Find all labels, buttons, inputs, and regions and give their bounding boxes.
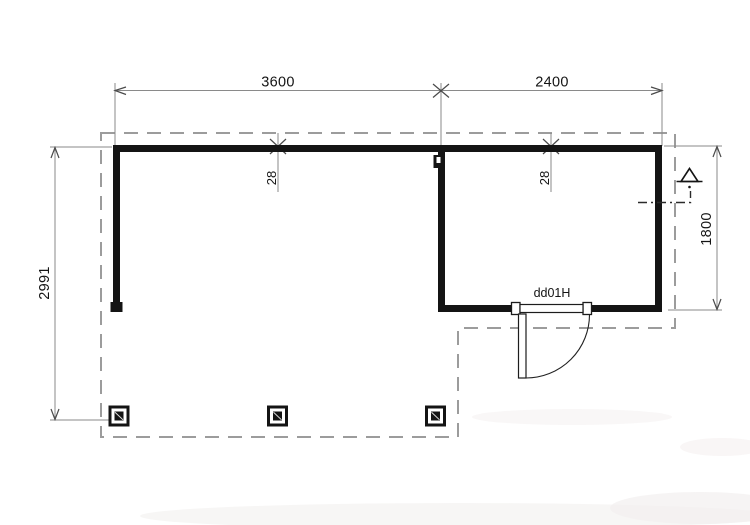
carport-wall-end-post	[111, 302, 123, 312]
dimension-label-28-left: 28	[264, 171, 279, 185]
door-leaf	[519, 314, 527, 378]
room-bottom-wall-left-segment	[438, 305, 512, 312]
section-arrow-dot	[688, 186, 691, 189]
dimension-label-1800: 1800	[699, 212, 715, 245]
room-left-wall	[438, 152, 445, 312]
top-wall	[113, 145, 662, 152]
dimension-label-2400: 2400	[535, 75, 568, 91]
background-smudge	[680, 438, 750, 456]
dimension-label-28-right: 28	[537, 171, 552, 185]
background-smudge	[472, 409, 672, 425]
post-3	[427, 407, 445, 425]
floor-plan-canvas: 3600 2400 2991 1800 28 28 dd01H	[0, 0, 750, 525]
room-right-wall	[655, 145, 662, 312]
door-label: dd01H	[534, 286, 571, 300]
section-marker	[638, 169, 703, 203]
post-2	[269, 407, 287, 425]
roof-outline-dashed	[101, 133, 675, 437]
door-jamb-left	[512, 303, 521, 315]
wall-joint-notch	[437, 157, 441, 163]
dimension-label-2991: 2991	[37, 266, 53, 299]
door-frame	[520, 305, 583, 313]
section-arrow-triangle	[681, 169, 698, 182]
room-bottom-wall-right-segment	[591, 305, 662, 312]
post-1	[110, 407, 128, 425]
posts	[110, 407, 445, 425]
floor-plan-drawing: 3600 2400 2991 1800 28 28 dd01H	[0, 0, 750, 525]
section-cut-line	[638, 191, 691, 203]
dimension-label-3600: 3600	[261, 75, 294, 91]
door-swing-arc	[526, 315, 590, 379]
walls	[111, 145, 663, 312]
door	[512, 303, 592, 379]
carport-left-wall	[113, 145, 120, 305]
door-jamb-right	[583, 303, 592, 315]
dimension-arrows	[51, 84, 721, 420]
